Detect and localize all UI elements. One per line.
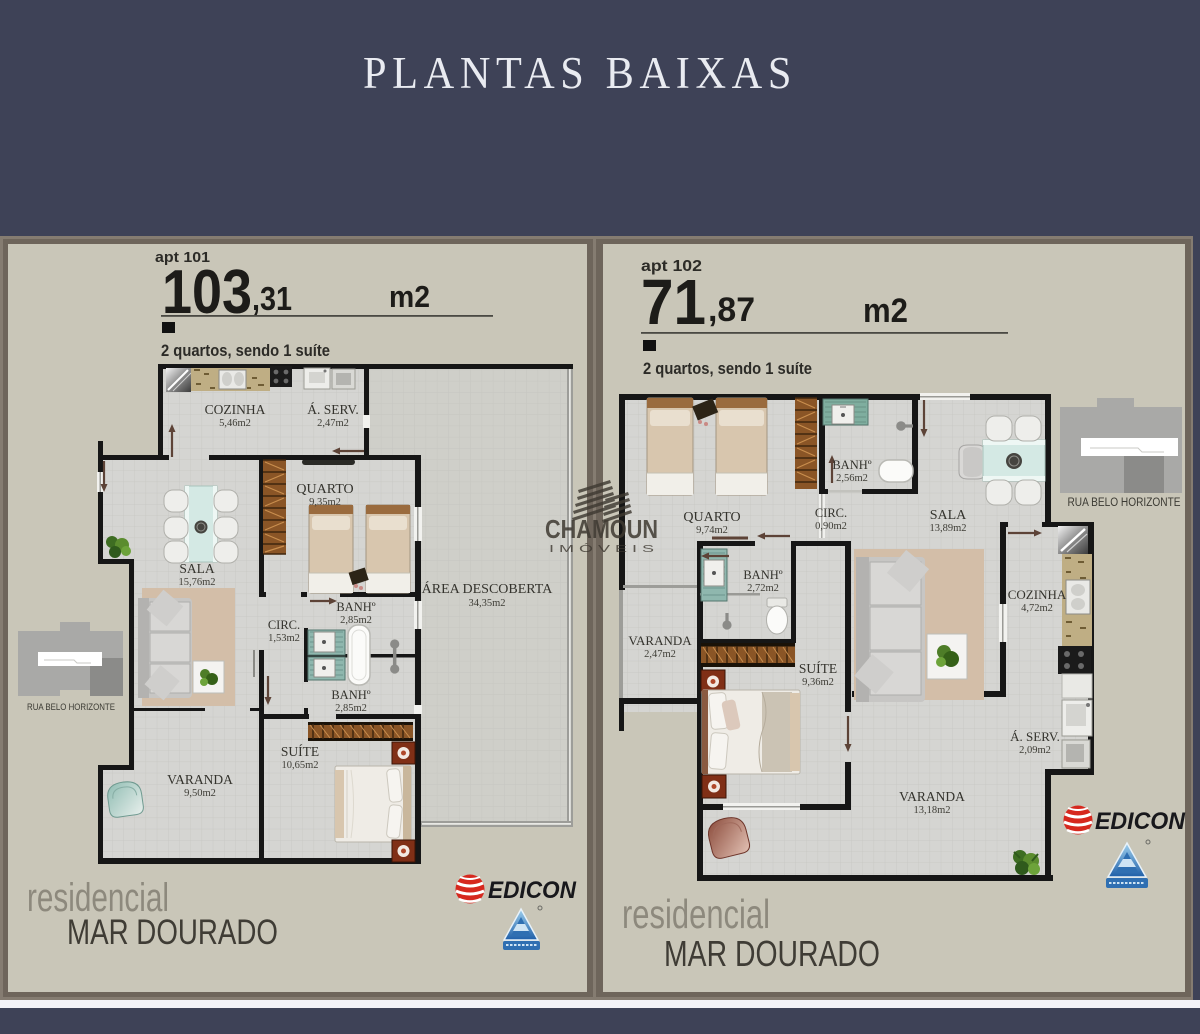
svg-text:1,53m2: 1,53m2 (268, 633, 300, 644)
svg-text:COZINHA: COZINHA (205, 402, 266, 417)
svg-text:VARANDA: VARANDA (628, 633, 692, 648)
svg-text:2 quartos, sendo 1 suíte: 2 quartos, sendo 1 suíte (161, 342, 330, 360)
svg-text:PLANTAS BAIXAS: PLANTAS BAIXAS (363, 48, 797, 98)
svg-text:SALA: SALA (179, 561, 215, 576)
svg-text:CIRC.: CIRC. (268, 618, 300, 632)
svg-text:2,72m2: 2,72m2 (747, 583, 779, 594)
svg-text:4,72m2: 4,72m2 (1021, 603, 1053, 614)
svg-text:residencial: residencial (622, 891, 770, 937)
svg-text:BANHº: BANHº (832, 458, 871, 472)
svg-text:m2: m2 (389, 279, 430, 314)
svg-text:2,85m2: 2,85m2 (340, 615, 372, 626)
svg-text:QUARTO: QUARTO (296, 482, 353, 497)
svg-text:SUÍTE: SUÍTE (281, 744, 319, 759)
svg-text:9,35m2: 9,35m2 (309, 497, 341, 508)
svg-text:9,74m2: 9,74m2 (696, 525, 728, 536)
svg-text:2,47m2: 2,47m2 (317, 418, 349, 429)
svg-text:SUÍTE: SUÍTE (799, 661, 837, 676)
svg-text:ÁREA DESCOBERTA: ÁREA DESCOBERTA (422, 580, 554, 597)
svg-text:EDICON: EDICON (1095, 808, 1186, 835)
svg-text:BANHº: BANHº (743, 568, 782, 582)
svg-text:2,85m2: 2,85m2 (335, 703, 367, 714)
svg-text:Á. SERV.: Á. SERV. (1010, 729, 1060, 744)
svg-text:2 quartos, sendo 1 suíte: 2 quartos, sendo 1 suíte (643, 360, 812, 378)
svg-text:71: 71 (641, 266, 706, 338)
svg-text:2,47m2: 2,47m2 (644, 649, 676, 660)
svg-text:2,56m2: 2,56m2 (836, 473, 868, 484)
svg-text:5,46m2: 5,46m2 (219, 418, 251, 429)
svg-text:Á. SERV.: Á. SERV. (307, 402, 359, 417)
svg-text:VARANDA: VARANDA (167, 772, 233, 787)
svg-text:MAR DOURADO: MAR DOURADO (67, 913, 278, 952)
svg-text:QUARTO: QUARTO (683, 510, 740, 525)
svg-text:CIRC.: CIRC. (815, 506, 847, 520)
svg-text:9,50m2: 9,50m2 (184, 788, 216, 799)
svg-text:15,76m2: 15,76m2 (178, 577, 215, 588)
svg-text:VARANDA: VARANDA (899, 789, 965, 804)
svg-text:BANHº: BANHº (336, 600, 375, 614)
svg-text:13,18m2: 13,18m2 (913, 805, 950, 816)
svg-text:COZINHA: COZINHA (1008, 587, 1067, 602)
svg-text:m2: m2 (863, 292, 908, 330)
svg-text:BANHº: BANHº (331, 688, 370, 702)
svg-text:I M Ó V E I S: I M Ó V E I S (549, 542, 655, 555)
svg-text:13,89m2: 13,89m2 (929, 523, 966, 534)
svg-text:SALA: SALA (930, 508, 967, 523)
svg-text:,31: ,31 (252, 280, 292, 317)
svg-text:34,35m2: 34,35m2 (468, 598, 505, 609)
svg-text:2,09m2: 2,09m2 (1019, 745, 1051, 756)
svg-text:RUA BELO HORIZONTE: RUA BELO HORIZONTE (1068, 497, 1181, 509)
svg-text:10,65m2: 10,65m2 (281, 760, 318, 771)
svg-text:9,36m2: 9,36m2 (802, 677, 834, 688)
svg-text:EDICON: EDICON (488, 877, 577, 904)
svg-text:,87: ,87 (708, 291, 755, 329)
svg-text:MAR DOURADO: MAR DOURADO (664, 933, 880, 974)
svg-text:0,90m2: 0,90m2 (815, 521, 847, 532)
svg-text:RUA BELO HORIZONTE: RUA BELO HORIZONTE (27, 702, 115, 712)
svg-text:CHAMOUN: CHAMOUN (545, 514, 658, 544)
